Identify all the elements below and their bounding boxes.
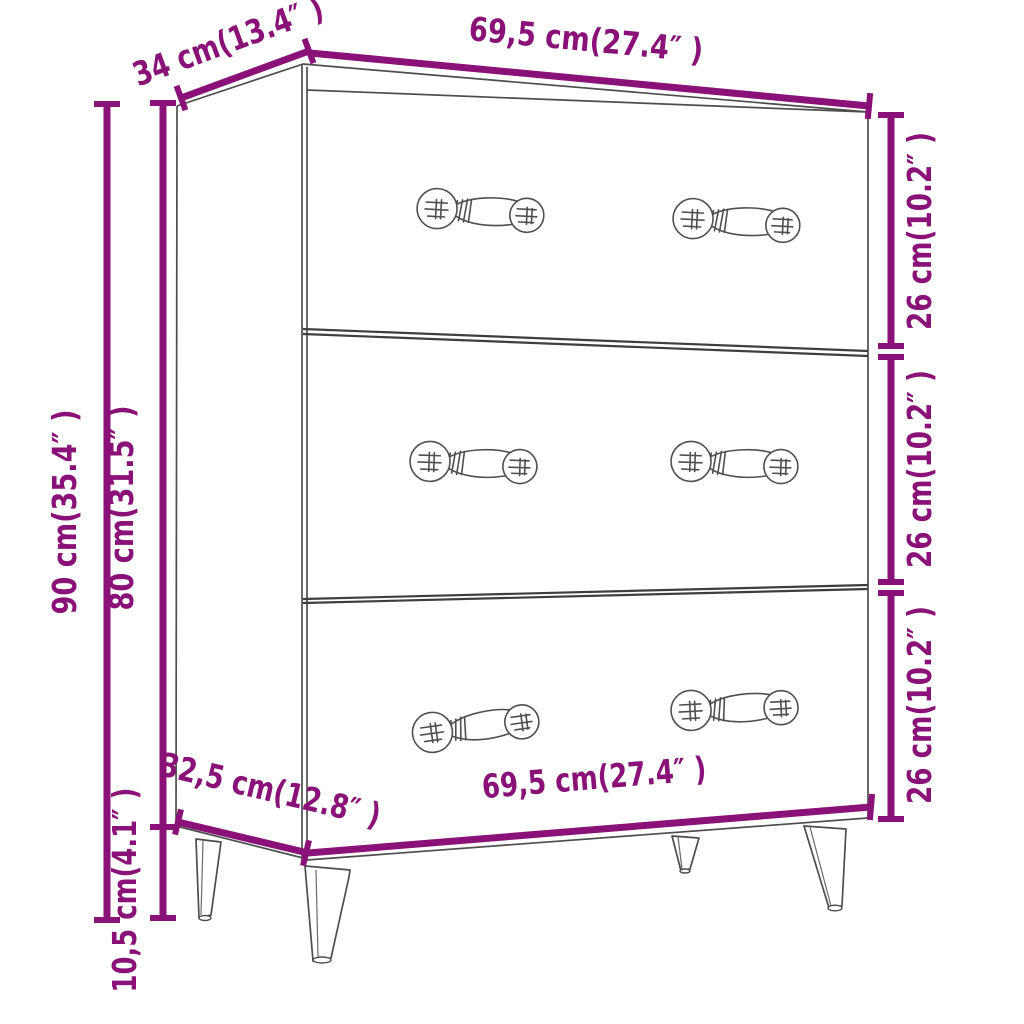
drawer2-handle-left (409, 441, 537, 485)
dim-label-leg-height: 10,5 cm(4.1″ ) (105, 788, 144, 993)
drawer1-handle-right (672, 198, 801, 245)
dim-label-drawer-top: 26 cm(10.2″ ) (900, 132, 939, 330)
side-panel-back-edge (176, 106, 177, 826)
leg-front-left (305, 866, 350, 963)
dim-drawer-heights: 26 cm(10.2″ ) 26 cm(10.2″ ) 26 cm(10.2″ … (878, 115, 939, 819)
leg-front-right (804, 826, 846, 911)
side-panel-bottom-edge (176, 826, 303, 858)
dim-label-width-top: 69,5 cm(27.4″ ) (467, 9, 705, 70)
drawer2-handle-right (670, 441, 798, 485)
drawer3-handle-right (670, 685, 799, 732)
dim-depth-top: 34 cm(13.4″ ) (127, 0, 328, 110)
dim-width-bottom: 69,5 cm(27.4″ ) (308, 749, 872, 853)
front-bottom-edge (307, 818, 868, 860)
leg-back-left (196, 839, 221, 921)
dim-label-depth-bottom: 32,5 cm(12.8″ ) (157, 745, 385, 835)
dim-label-height-body: 80 cm(31.5″ ) (102, 406, 141, 611)
dim-label-width-bottom: 69,5 cm(27.4″ ) (480, 749, 707, 806)
leg-foot (680, 869, 690, 873)
drawer-divider-bottom (303, 585, 868, 603)
drawer1-handle-left (416, 188, 545, 235)
sideboard-dimension-diagram: 34 cm(13.4″ ) 69,5 cm(27.4″ ) 26 cm(10.2… (0, 0, 1024, 1024)
drawer-handles (409, 188, 801, 755)
leg-back-right (672, 836, 699, 873)
leg-foot (313, 957, 331, 963)
dim-width-top: 69,5 cm(27.4″ ) (310, 9, 870, 119)
dim-label-height-overall: 90 cm(35.4″ ) (45, 410, 84, 615)
drawer3-handle-left (410, 698, 541, 755)
dim-label-drawer-middle: 26 cm(10.2″ ) (900, 370, 939, 568)
drawer-divider-top (303, 329, 868, 356)
leg-foot (828, 905, 842, 911)
top-back-edge (303, 64, 868, 112)
dim-height-body-and-leg: 80 cm(31.5″ ) 10,5 cm(4.1″ ) (102, 103, 176, 993)
dimension-diagram-page: 34 cm(13.4″ ) 69,5 cm(27.4″ ) 26 cm(10.2… (0, 0, 1024, 1024)
dim-label-drawer-bottom: 26 cm(10.2″ ) (900, 606, 939, 804)
leg-foot (199, 916, 211, 921)
